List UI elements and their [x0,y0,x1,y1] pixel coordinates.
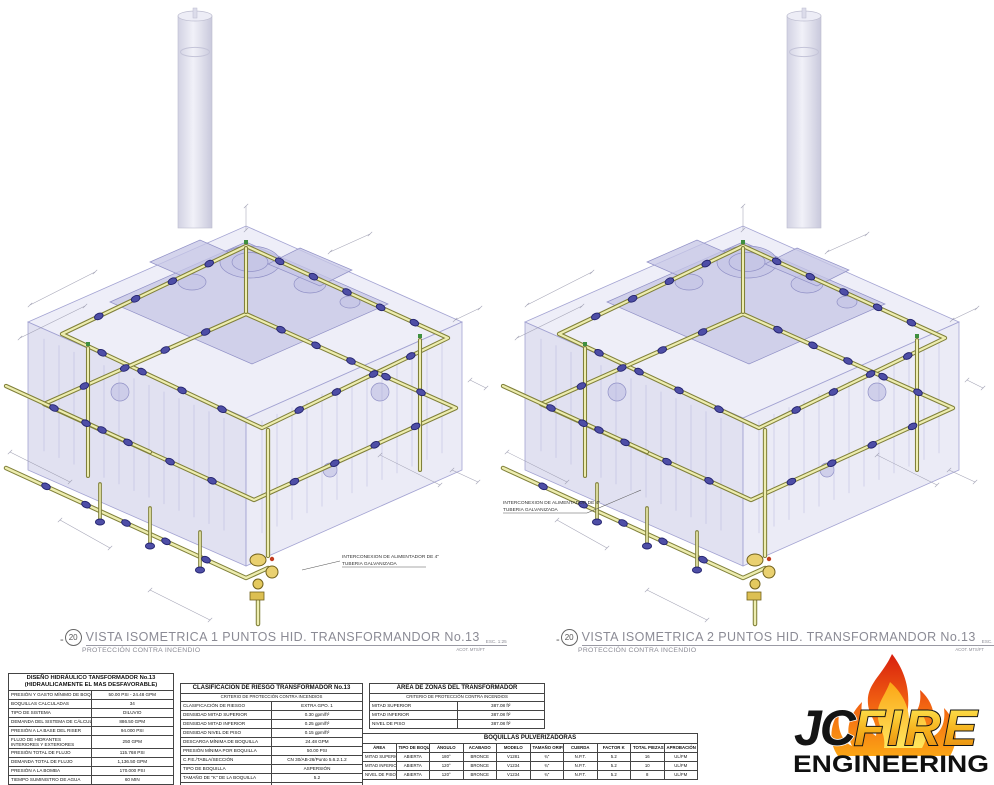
risk-table-title: CLASIFICACIÓN DE RIESGO TRANSFORMADOR No… [181,684,363,694]
table-row: PRESIÓN Y GASTO MÍNIMO DE BOQUILLA50.00 … [9,691,174,700]
table-row: TIPO DE SISTEMADILUVIO [9,709,174,718]
hydraulic-design-table: DISEÑO HIDRÁULICO TANSFORMADOR No.13 (HI… [8,673,174,785]
view-2-scale: ESC. 1:25 [976,639,994,644]
table-row: DEMANDA DEL SISTEMA DE CÁLCULO886.50 GPM [9,718,174,727]
detail-callout-1: 20 [65,629,82,646]
table-row: PRESIÓN A LA BOMBA170.000 PSI [9,766,174,775]
view-1-units: ACOT. MTS/FT [456,647,485,654]
view-2-subtitle: PROTECCIÓN CONTRA INCENDIO [578,647,696,654]
table-row: TAMAÑO DE "K" DE LA BOQUILLA5.2 [181,774,363,783]
note-line2: TUBERIA GALVANIZADA [503,507,559,513]
table-row: MITAD INFERIOR387.08 ft² [370,711,545,720]
table-row: BOQUILLAS CALCULADAS34 [9,700,174,709]
table-row: NIVEL DE PISO387.08 ft² [370,720,545,729]
note-line1: INTERCONEXION DE ALIMENTADOR DE 4" [503,500,600,506]
table-row: MITAD INFERIORABIERTA120°BRONCEV1234¾"N.… [363,762,698,771]
table-row: MITAD SUPERIOR387.08 ft² [370,702,545,711]
areas-table-subtitle: CRITERIO DE PROTECCIÓN CONTRA INCENDIOS [370,694,545,702]
logo-jc-text: JC [794,700,857,756]
table-row: TIEMPO SUMINISTRO DE AGUA60 MIN [9,775,174,784]
table-row: DEMANDA TOTAL DE FLUJO1,136.50 GPM [9,757,174,766]
zone-areas-table: ÁREA DE ZONAS DEL TRANSFORMADOR CRITERIO… [369,683,545,729]
table-row: PRESIÓN MÍNIMA POR BOQUILLA50.00 PSI [181,747,363,756]
table-row: DENSIDAD MITAD INFERIOR0.25 gpm/ft² [181,720,363,729]
risk-table-subtitle: CRITERIO DE PROTECCIÓN CONTRA INCENDIOS [181,694,363,702]
table-row: FLUJO DE HIDRANTES INTERIORES Y EXTERIOR… [9,736,174,749]
callout-dash: - [60,634,64,646]
logo-fire-text: FIRE [854,700,980,756]
table-row: C.P.E./TABLA/SECCIÓNCN 30/AB-26/Punto 5.… [181,756,363,765]
isometric-view-1: INTERCONEXION DE ALIMENTADOR DE 4" TUBER… [0,0,492,632]
note-line2: TUBERIA GALVANIZADA [342,561,398,567]
nozzles-table-title: BOQUILLAS PULVERIZADORAS [363,734,698,744]
view-2-title: VISTA ISOMETRICA 2 PUNTOS HID. TRANSFORM… [582,630,976,644]
view-1-title: VISTA ISOMETRICA 1 PUNTOS HID. TRANSFORM… [86,630,480,644]
isometric-view-2: INTERCONEXION DE ALIMENTADOR DE 4" TUBER… [497,0,994,632]
drawing-sheet: INTERCONEXION DE ALIMENTADOR DE 4" TUBER… [0,0,994,785]
view-title-1: - 20 VISTA ISOMETRICA 1 PUNTOS HID. TRAN… [60,629,485,654]
table-row: CLASIFICACIÓN DE RIESGOEXTRA GPO. 1 [181,702,363,711]
note-line1: INTERCONEXION DE ALIMENTADOR DE 4" [342,554,439,560]
table-header-row: ÁREA TIPO DE BOQUILLA ÁNGULO ACABADO MOD… [363,744,698,753]
logo-engineering-text: ENGINEERING [793,751,989,778]
table-row: MITAD SUPERIORABIERTA180°BRONCEV1281¾"N.… [363,753,698,762]
table-row: PRESIÓN TOTAL DE FLUJO115.768 PSI [9,748,174,757]
hydraulic-table-title: DISEÑO HIDRÁULICO TANSFORMADOR No.13 (HI… [9,674,174,691]
company-logo: JC FIRE ENGINEERING [792,650,992,783]
risk-classification-table: CLASIFICACIÓN DE RIESGO TRANSFORMADOR No… [180,683,363,785]
table-row: NIVEL DE PISOABIERTA120°BRONCEV1234¾"N.P… [363,771,698,780]
table-row: DESCARGA MÍNIMA DE BOQUILLA24.48 GPM [181,738,363,747]
view-1-scale: ESC. 1:25 [480,639,507,644]
view-1-subtitle: PROTECCIÓN CONTRA INCENDIO [82,647,200,654]
callout-dash: - [556,634,560,646]
table-row: DENSIDAD MITAD SUPERIOR0.30 gpm/ft² [181,711,363,720]
table-row: TIPO DE BOQUILLAASPERSIÓN [181,765,363,774]
detail-callout-2: 20 [561,629,578,646]
pipe-note: INTERCONEXION DE ALIMENTADOR DE 4" TUBER… [302,554,439,570]
areas-table-title: ÁREA DE ZONAS DEL TRANSFORMADOR [370,684,545,694]
spray-nozzles-table: BOQUILLAS PULVERIZADORAS ÁREA TIPO DE BO… [362,733,698,780]
table-row: DENSIDAD NIVEL DE PISO0.15 gpm/ft² [181,729,363,738]
table-row: PRESIÓN A LA BASE DEL RISER94.000 PSI [9,727,174,736]
